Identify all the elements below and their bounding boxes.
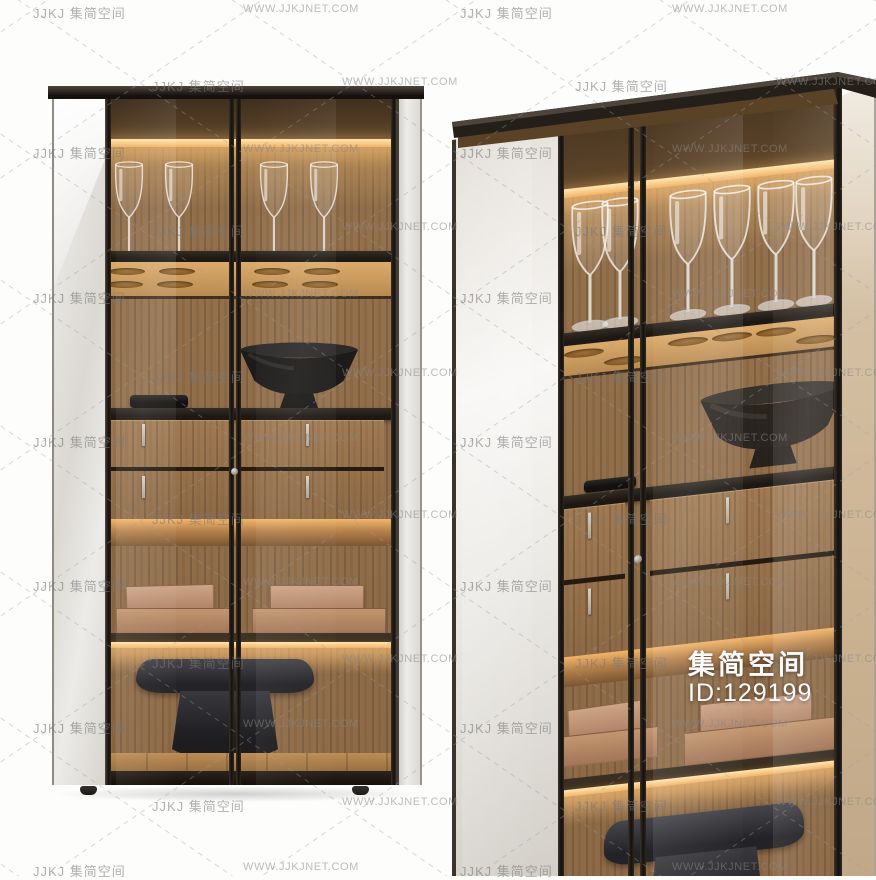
center-door-stile [628, 104, 634, 876]
glass-reflection [256, 99, 336, 785]
left-side-glass-panel [52, 99, 108, 785]
watermark-url-text: WWW.JJKJNET.COM [672, 3, 788, 15]
center-door-stile [640, 102, 646, 876]
center-door-stile [236, 99, 241, 785]
watermark-logo-text: JJKJ 集简空间 [460, 3, 553, 22]
display-cabinet-front-view [50, 86, 422, 798]
glass-reflection [116, 99, 176, 785]
watermark-url-text: WWW.JJKJNET.COM [243, 3, 359, 15]
door-stile [558, 111, 564, 876]
glass-reflection [773, 82, 833, 876]
drawer-stack-left [561, 503, 625, 658]
drawer-handle [588, 588, 591, 614]
door-knob [231, 468, 238, 475]
watermark-url-text: WWW.JJKJNET.COM [243, 861, 359, 873]
product-render-stage: JJKJ 集简空间WWW.JJKJNET.COMJJKJ 集简空间WWW.JJK… [0, 0, 876, 876]
cabinet-front-interior [106, 99, 396, 785]
shelf-oval-recess [564, 347, 604, 359]
watermark-logo-text: JJKJ 集简空间 [33, 861, 126, 880]
display-cabinet-perspective-view [452, 70, 876, 876]
cabinet-top-slab [452, 70, 876, 162]
right-side-glass-panel [842, 80, 876, 876]
door-stile [106, 99, 111, 785]
cabinet-foot [80, 786, 97, 795]
drawer-handle [588, 512, 591, 538]
center-door-stile [229, 99, 234, 785]
glass-corner-frame [452, 126, 456, 876]
shelf-oval-recess [604, 355, 644, 367]
cabinet-top-slab [48, 86, 424, 99]
watermark-logo-text: JJKJ 集简空间 [33, 3, 126, 22]
glass-reflection [653, 92, 743, 876]
interior-corner-edge [396, 99, 399, 785]
drawer-divider [561, 574, 625, 586]
right-side-glass-panel [396, 99, 422, 785]
left-side-glass-panel [452, 126, 558, 876]
door-stile [834, 81, 842, 876]
glass-reflection [462, 126, 532, 876]
cabinet-front-interior [558, 81, 842, 876]
cabinet-foot [352, 786, 369, 795]
glass-reflection-highlight [54, 99, 108, 339]
